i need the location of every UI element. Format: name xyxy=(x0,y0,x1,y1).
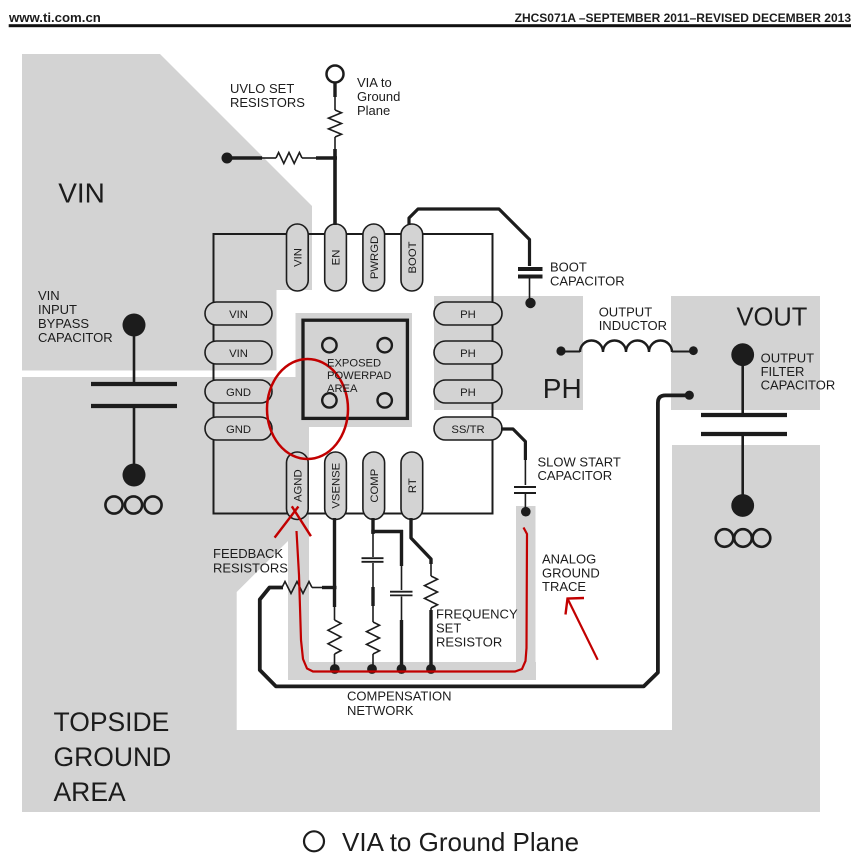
svg-text:VIN: VIN xyxy=(58,178,105,209)
svg-text:VSENSE: VSENSE xyxy=(331,462,343,508)
svg-text:PH: PH xyxy=(460,387,476,399)
svg-text:RESISTORS: RESISTORS xyxy=(230,95,305,110)
svg-text:CAPACITOR: CAPACITOR xyxy=(761,378,836,393)
svg-text:ANALOG: ANALOG xyxy=(542,552,596,567)
svg-text:TOPSIDE: TOPSIDE xyxy=(54,707,170,737)
svg-text:PH: PH xyxy=(460,309,476,321)
svg-text:POWERPAD: POWERPAD xyxy=(327,370,391,382)
svg-text:VIN: VIN xyxy=(292,248,304,267)
svg-text:AREA: AREA xyxy=(54,777,126,807)
svg-text:PH: PH xyxy=(460,348,476,360)
svg-text:EN: EN xyxy=(331,250,343,266)
svg-text:FREQUENCY: FREQUENCY xyxy=(436,607,518,622)
svg-text:UVLO SET: UVLO SET xyxy=(230,81,294,96)
svg-text:VIA to: VIA to xyxy=(357,75,392,90)
svg-text:BYPASS: BYPASS xyxy=(38,316,89,331)
svg-text:Plane: Plane xyxy=(357,103,390,118)
svg-text:EXPOSED: EXPOSED xyxy=(327,358,381,370)
svg-text:VIN: VIN xyxy=(229,309,248,321)
svg-text:FEEDBACK: FEEDBACK xyxy=(213,546,283,561)
svg-text:CAPACITOR: CAPACITOR xyxy=(538,468,613,483)
svg-text:PH: PH xyxy=(543,373,582,404)
svg-text:INPUT: INPUT xyxy=(38,302,77,317)
svg-text:Ground: Ground xyxy=(357,89,400,104)
svg-text:AGND: AGND xyxy=(292,469,304,502)
svg-text:VIN: VIN xyxy=(38,288,60,303)
svg-text:www.ti.com.cn: www.ti.com.cn xyxy=(8,10,101,25)
svg-text:TRACE: TRACE xyxy=(542,579,586,594)
svg-text:VIA to Ground Plane: VIA to Ground Plane xyxy=(342,827,579,857)
svg-text:BOOT: BOOT xyxy=(550,260,587,275)
svg-text:AREA: AREA xyxy=(327,383,358,395)
svg-text:PWRGD: PWRGD xyxy=(369,236,381,279)
svg-text:CAPACITOR: CAPACITOR xyxy=(38,330,113,345)
svg-text:SET: SET xyxy=(436,621,461,636)
svg-text:RESISTORS: RESISTORS xyxy=(213,561,288,576)
svg-text:GND: GND xyxy=(226,387,251,399)
svg-text:INDUCTOR: INDUCTOR xyxy=(599,318,667,333)
svg-text:COMPENSATION: COMPENSATION xyxy=(347,689,452,704)
svg-text:RESISTOR: RESISTOR xyxy=(436,635,502,650)
svg-text:GND: GND xyxy=(226,424,251,436)
svg-text:GROUND: GROUND xyxy=(54,742,172,772)
svg-text:COMP: COMP xyxy=(369,469,381,503)
svg-text:VIN: VIN xyxy=(229,348,248,360)
svg-text:VOUT: VOUT xyxy=(737,303,808,331)
svg-text:BOOT: BOOT xyxy=(407,241,419,273)
svg-text:RT: RT xyxy=(407,478,419,493)
svg-text:ZHCS071A –SEPTEMBER 2011–REVIS: ZHCS071A –SEPTEMBER 2011–REVISED DECEMBE… xyxy=(515,11,852,25)
svg-text:CAPACITOR: CAPACITOR xyxy=(550,274,625,289)
svg-text:NETWORK: NETWORK xyxy=(347,703,414,718)
svg-text:SS/TR: SS/TR xyxy=(451,424,484,436)
